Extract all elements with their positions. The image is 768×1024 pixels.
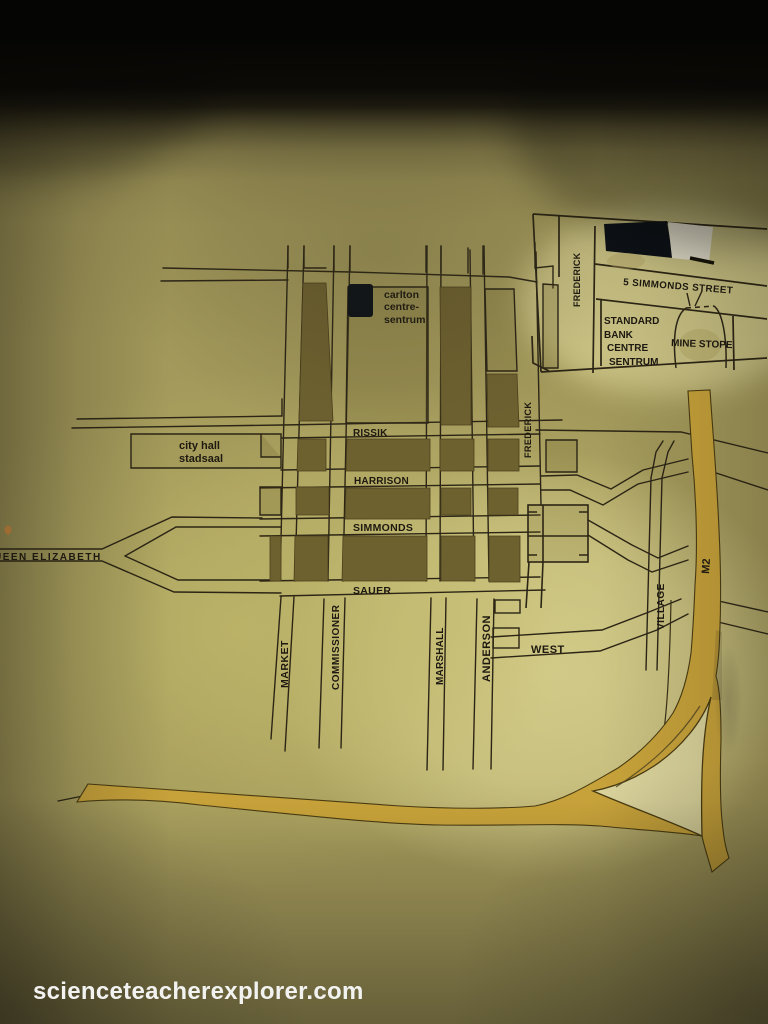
svg-text:FREDERICK: FREDERICK xyxy=(523,402,533,458)
svg-text:COMMISSIONER: COMMISSIONER xyxy=(331,604,342,690)
svg-text:SIMMONDS: SIMMONDS xyxy=(353,522,413,534)
svg-text:scienceteacherexplorer.com: scienceteacherexplorer.com xyxy=(33,978,364,1005)
svg-text:MARSHALL: MARSHALL xyxy=(435,627,446,685)
svg-text:stadsaal: stadsaal xyxy=(179,453,223,465)
svg-text:city hall: city hall xyxy=(179,440,220,452)
svg-text:HARRISON: HARRISON xyxy=(354,476,409,487)
svg-text:WEST: WEST xyxy=(531,644,565,656)
svg-text:MARKET: MARKET xyxy=(279,640,291,688)
svg-text:SAUER: SAUER xyxy=(353,585,391,597)
svg-text:ANDERSON: ANDERSON xyxy=(481,615,493,682)
